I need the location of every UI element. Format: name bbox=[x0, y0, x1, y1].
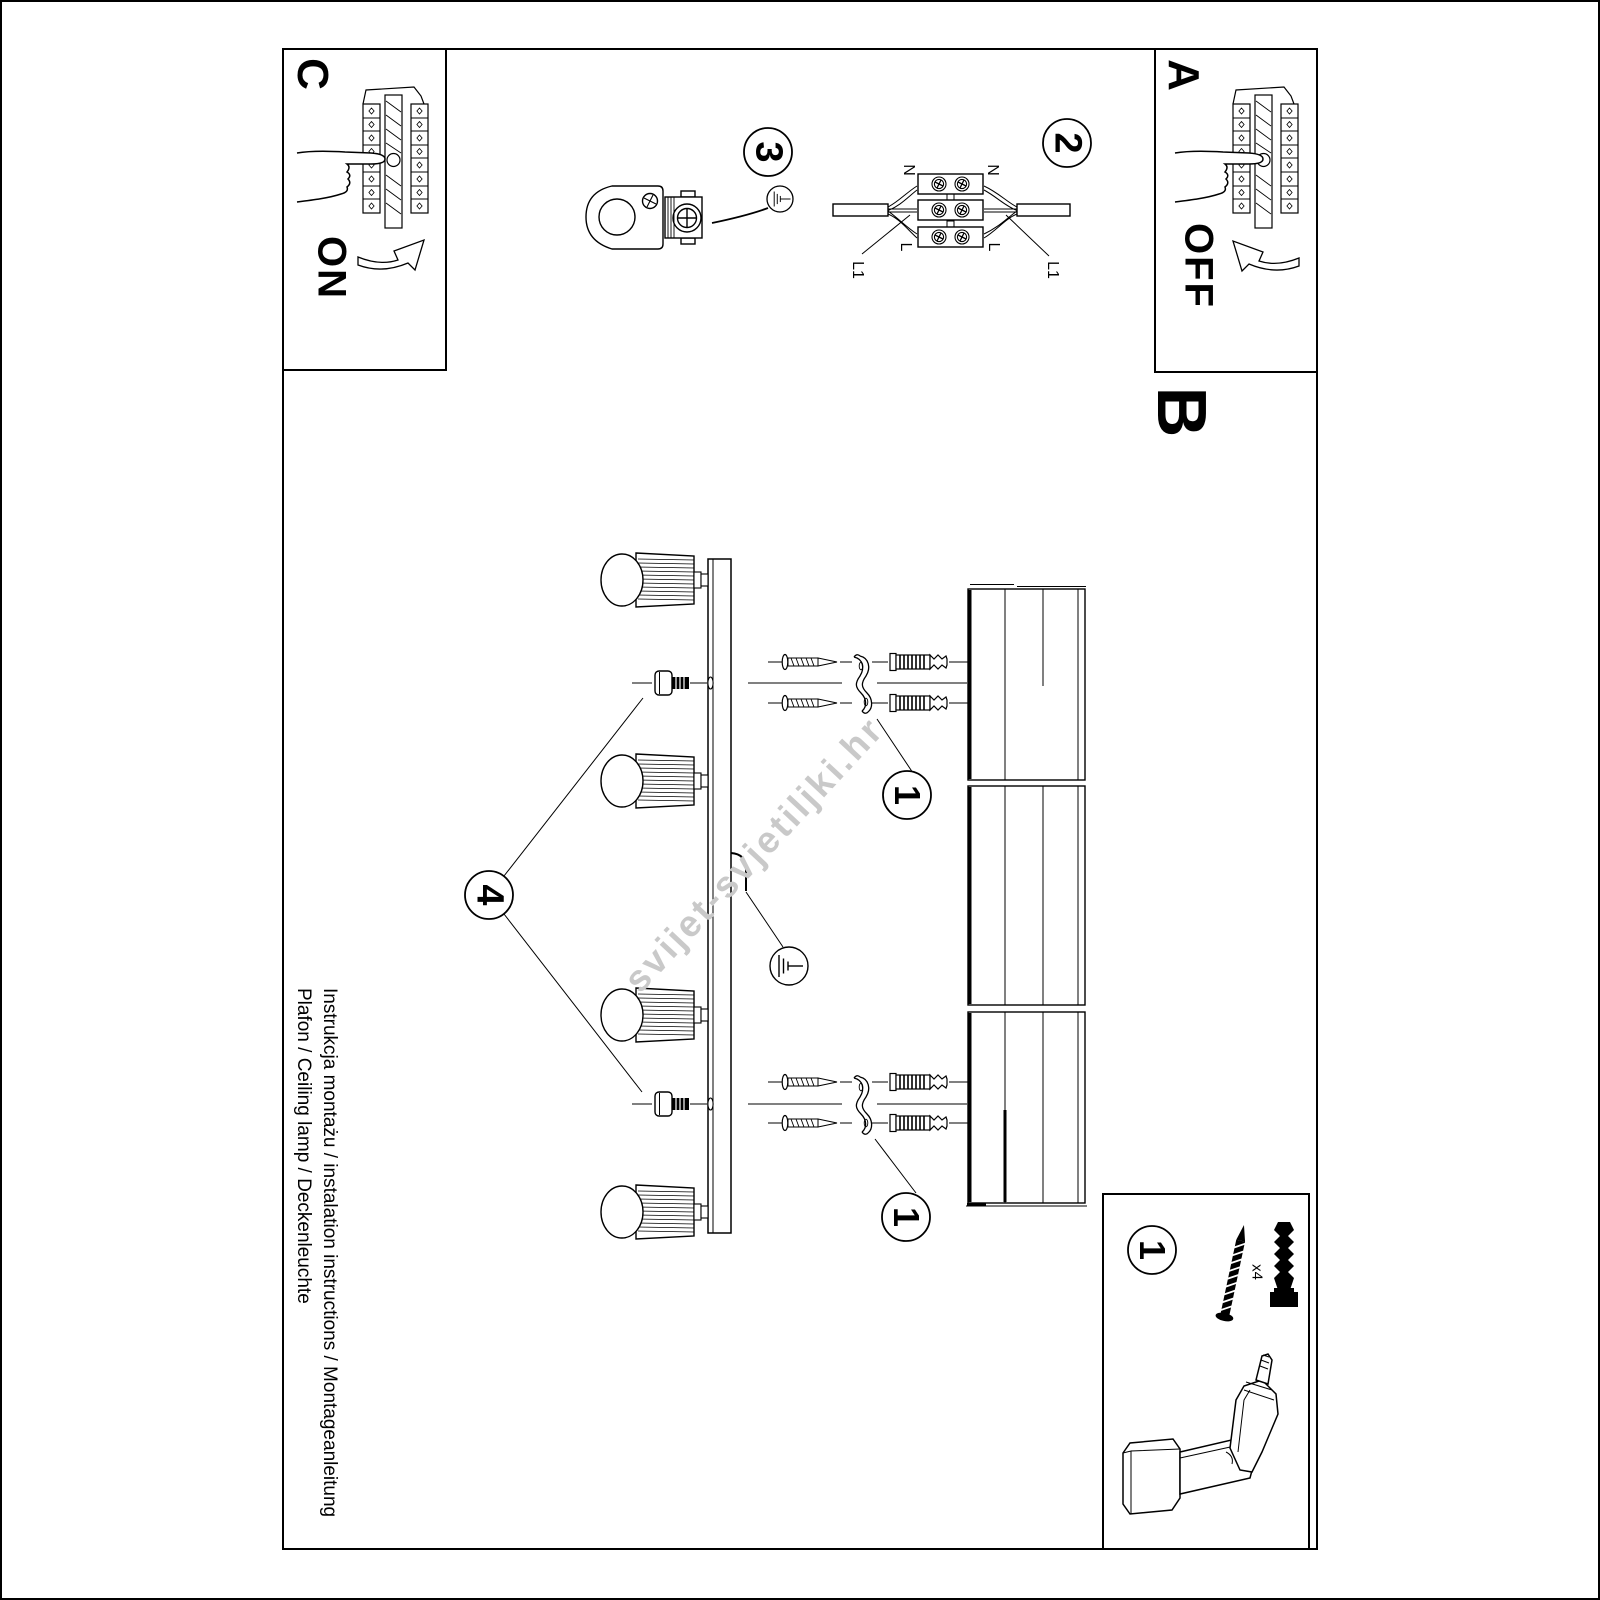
step3-number: 3 bbox=[747, 141, 790, 162]
drill-icon bbox=[1123, 1354, 1278, 1514]
spotlight-figure bbox=[601, 988, 708, 1042]
wire-label-l-left: L bbox=[896, 243, 914, 252]
step1-number-parts: 1 bbox=[1131, 1240, 1173, 1260]
on-label: ON bbox=[309, 236, 354, 300]
mounting-clip-figure bbox=[854, 655, 872, 714]
anchor-item-figure bbox=[1270, 1222, 1298, 1307]
panel-c-label: C bbox=[287, 58, 337, 90]
footer-product-line: Plafon / Ceiling lamp / Deckenleuchte bbox=[291, 988, 316, 1304]
wire-label-l1-left: L1 bbox=[848, 261, 866, 279]
turn-off-arrow-icon bbox=[1233, 241, 1299, 271]
parts-box-figure bbox=[1123, 1222, 1298, 1514]
screw-item-figure bbox=[1215, 1223, 1253, 1323]
anchor-quantity-label: x4 bbox=[1249, 1264, 1266, 1280]
wire-label-n-right: N bbox=[983, 164, 1001, 176]
installation-instruction-sheet: C ON A OFF B 3 2 4 1 1 1 N N L L L1 L1 x… bbox=[0, 0, 1600, 1600]
assembly-ground-symbol bbox=[770, 947, 808, 985]
ceiling-section-figure bbox=[966, 585, 1087, 1207]
thumbscrew-figure bbox=[655, 671, 689, 695]
turn-on-arrow-icon bbox=[358, 240, 424, 270]
earth-wire bbox=[712, 208, 768, 223]
step2-number: 2 bbox=[1046, 132, 1089, 153]
panel-a-label: A bbox=[1158, 59, 1208, 91]
thumbscrew-figure bbox=[655, 1092, 689, 1116]
spotlight-figure bbox=[601, 754, 708, 808]
mounting-clip-figure bbox=[854, 1076, 872, 1135]
step1-number-bottom: 1 bbox=[885, 1207, 927, 1227]
step4-number: 4 bbox=[468, 884, 511, 905]
step1-number-top: 1 bbox=[886, 785, 928, 805]
spotlight-figure bbox=[601, 553, 708, 607]
wire-label-l1-right: L1 bbox=[1043, 261, 1061, 279]
wire-label-n-left: N bbox=[899, 164, 917, 176]
panel-b-label: B bbox=[1142, 387, 1222, 438]
off-label: OFF bbox=[1176, 223, 1221, 309]
wire-label-l-right: L bbox=[984, 243, 1002, 252]
footer-title-line: Instrukcja montażu / instalation instruc… bbox=[317, 988, 342, 1517]
spotlight-figure bbox=[601, 1185, 708, 1239]
